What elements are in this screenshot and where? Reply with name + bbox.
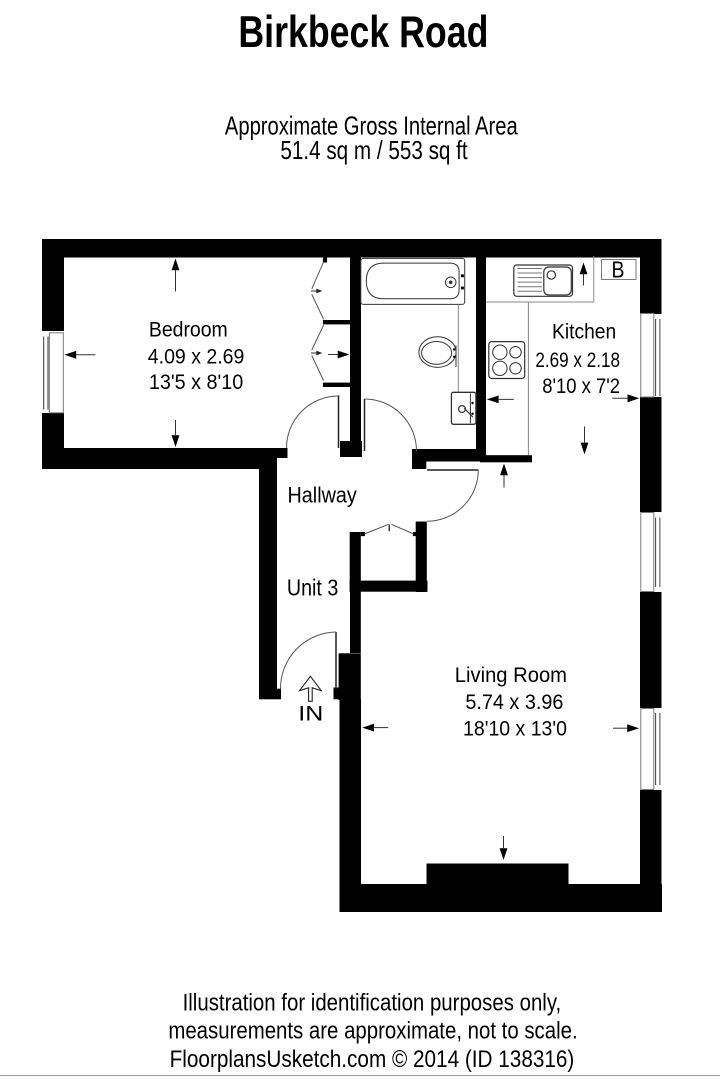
svg-text:IN: IN [298,702,323,726]
svg-text:51.4 sq m / 553 sq ft: 51.4 sq m / 553 sq ft [280,135,468,165]
svg-text:Bedroom: Bedroom [149,318,228,342]
svg-text:Unit 3: Unit 3 [287,575,338,601]
svg-text:4.09 x 2.69: 4.09 x 2.69 [148,344,245,368]
svg-text:18'10 x 13'0: 18'10 x 13'0 [463,715,567,740]
svg-text:FloorplansUsketch.com © 2014 (: FloorplansUsketch.com © 2014 (ID 138316) [170,1046,575,1073]
svg-text:Illustration for identificatio: Illustration for identification purposes… [183,989,562,1016]
svg-text:8'10 x 7'2: 8'10 x 7'2 [542,374,620,398]
svg-text:Birkbeck Road: Birkbeck Road [238,8,488,57]
svg-text:13'5 x 8'10: 13'5 x 8'10 [149,370,243,394]
svg-text:5.74 x 3.96: 5.74 x 3.96 [465,689,563,714]
svg-text:measurements are approximate,: measurements are approximate, not to sca… [168,1018,577,1045]
svg-text:B: B [612,257,625,283]
svg-text:Living Room: Living Room [455,662,567,687]
svg-text:Hallway: Hallway [288,483,358,508]
svg-text:Kitchen: Kitchen [552,320,616,344]
svg-text:2.69 x 2.18: 2.69 x 2.18 [535,348,620,372]
